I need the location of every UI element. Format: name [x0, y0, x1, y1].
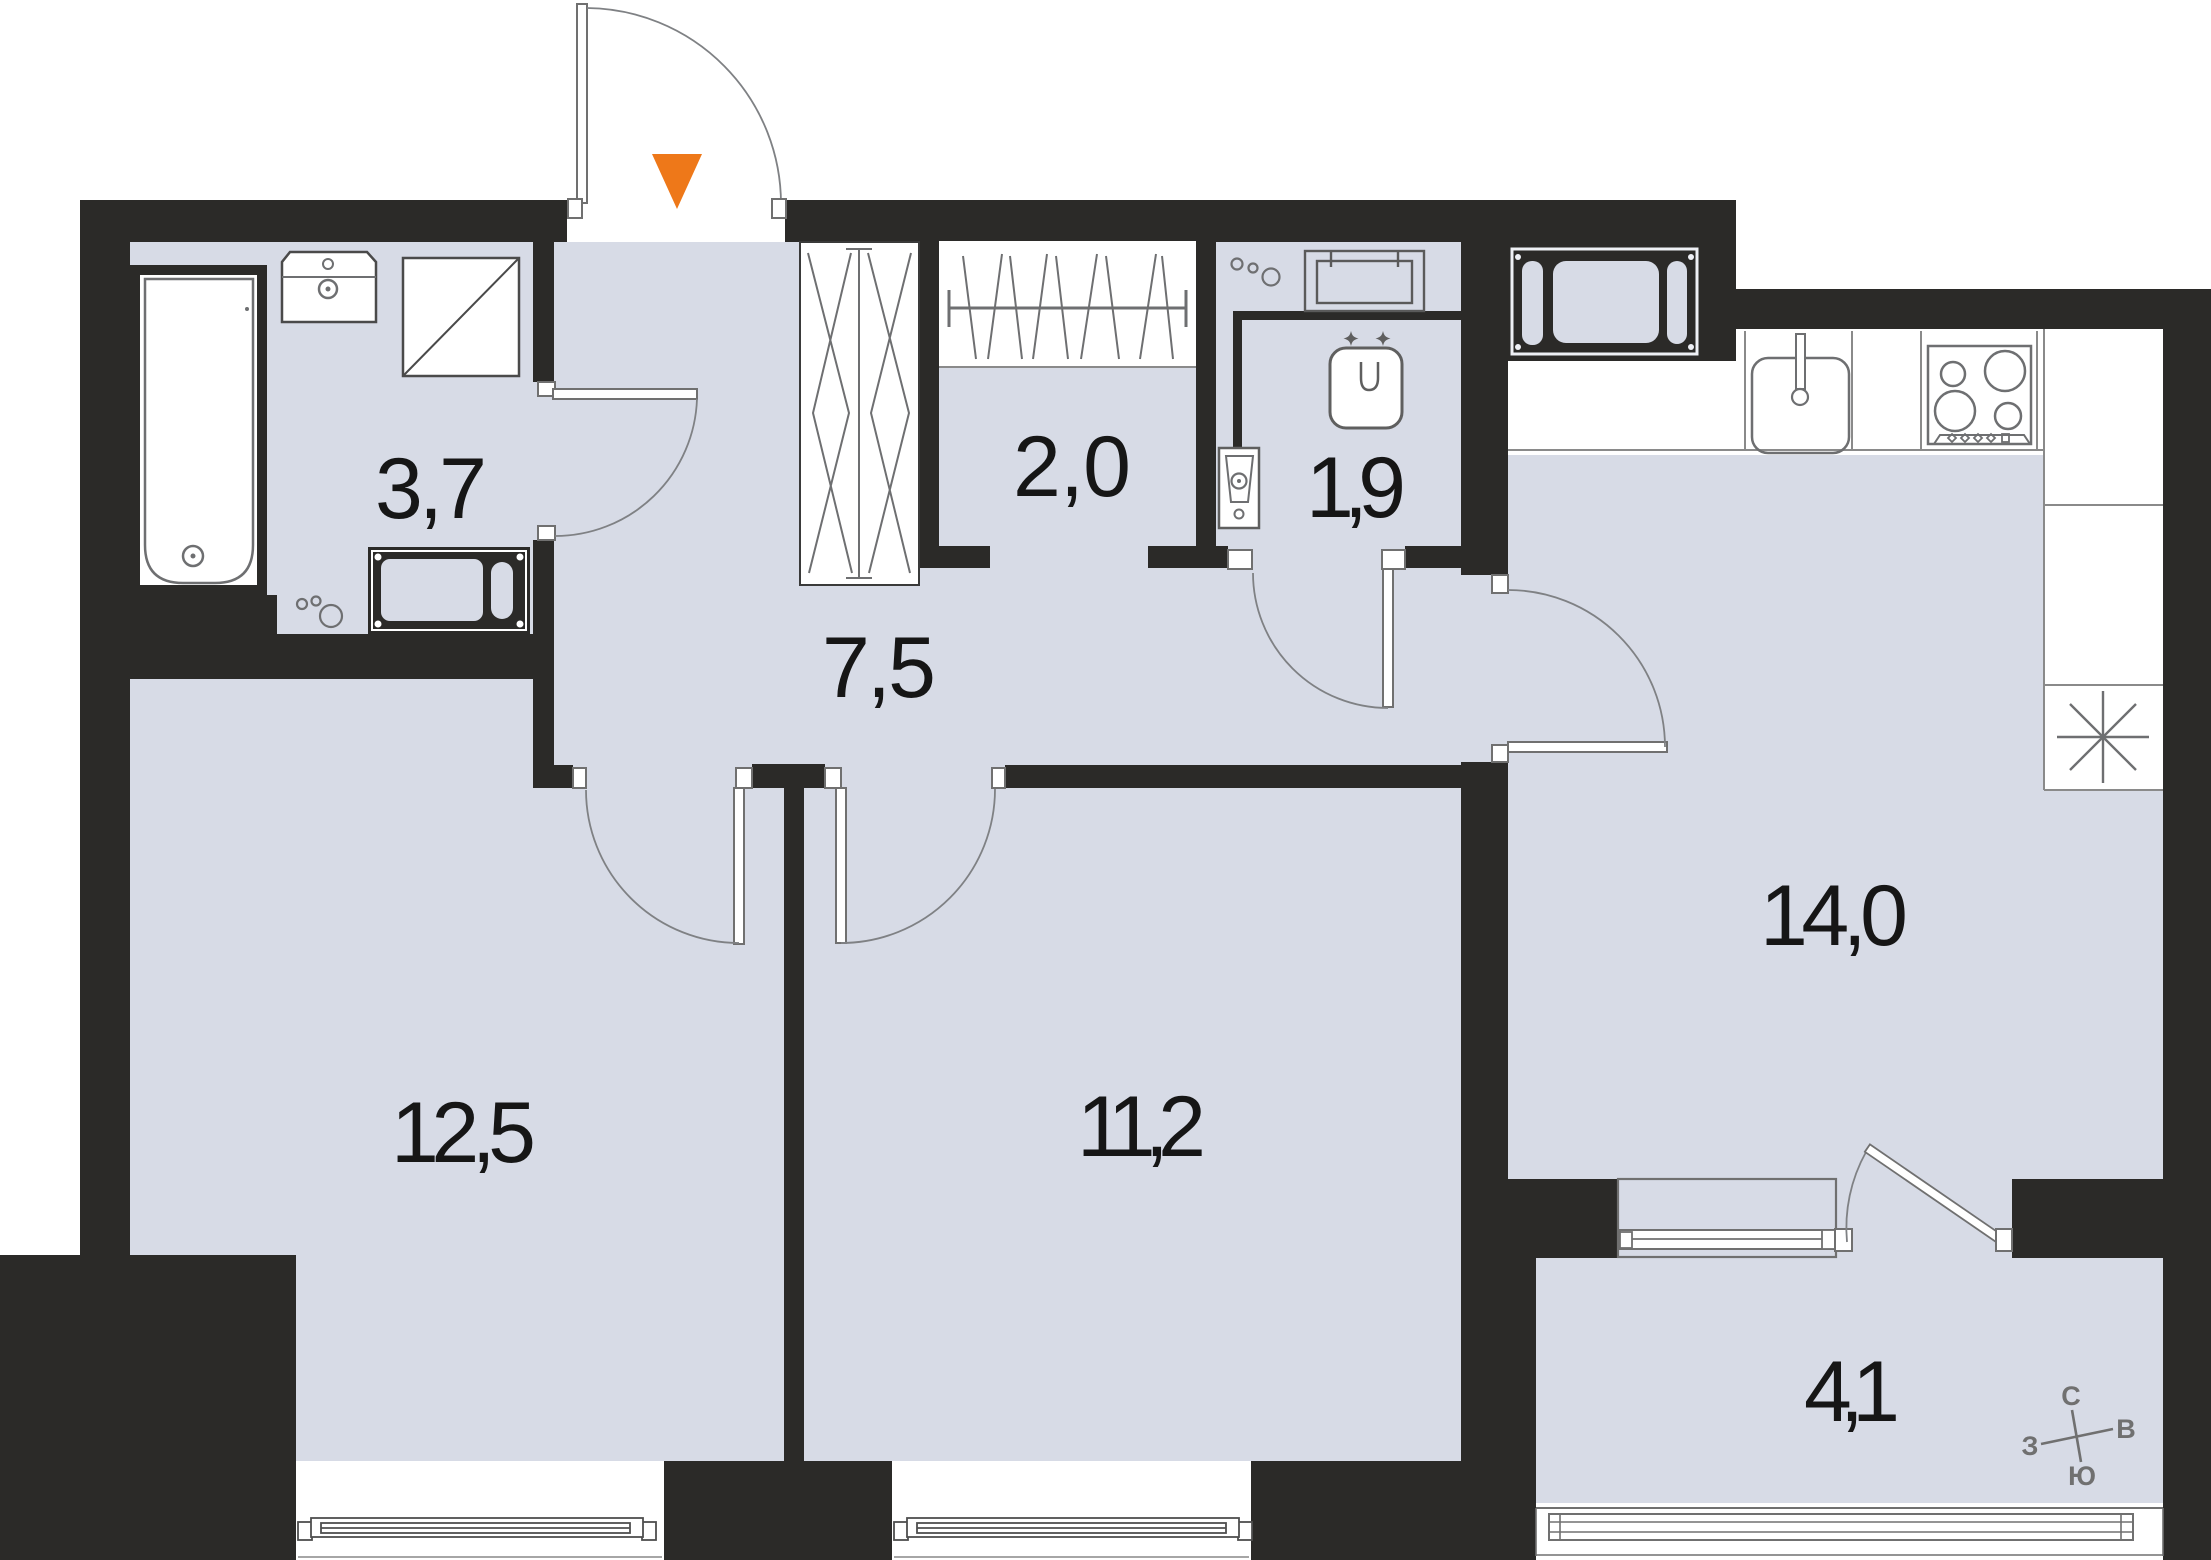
- svg-text:В: В: [2116, 1414, 2136, 1444]
- svg-text:1,9: 1,9: [1306, 440, 1406, 536]
- svg-text:14,0: 14,0: [1760, 868, 1908, 964]
- svg-text:З: З: [2022, 1431, 2039, 1461]
- svg-text:2,0: 2,0: [1013, 419, 1131, 515]
- svg-text:С: С: [2061, 1381, 2081, 1411]
- svg-text:11,2: 11,2: [1077, 1079, 1206, 1175]
- svg-text:4,1: 4,1: [1804, 1344, 1900, 1440]
- svg-text:7,5: 7,5: [822, 620, 936, 716]
- svg-text:3,7: 3,7: [375, 441, 487, 537]
- svg-text:12,5: 12,5: [391, 1085, 536, 1181]
- svg-text:Ю: Ю: [2068, 1461, 2096, 1491]
